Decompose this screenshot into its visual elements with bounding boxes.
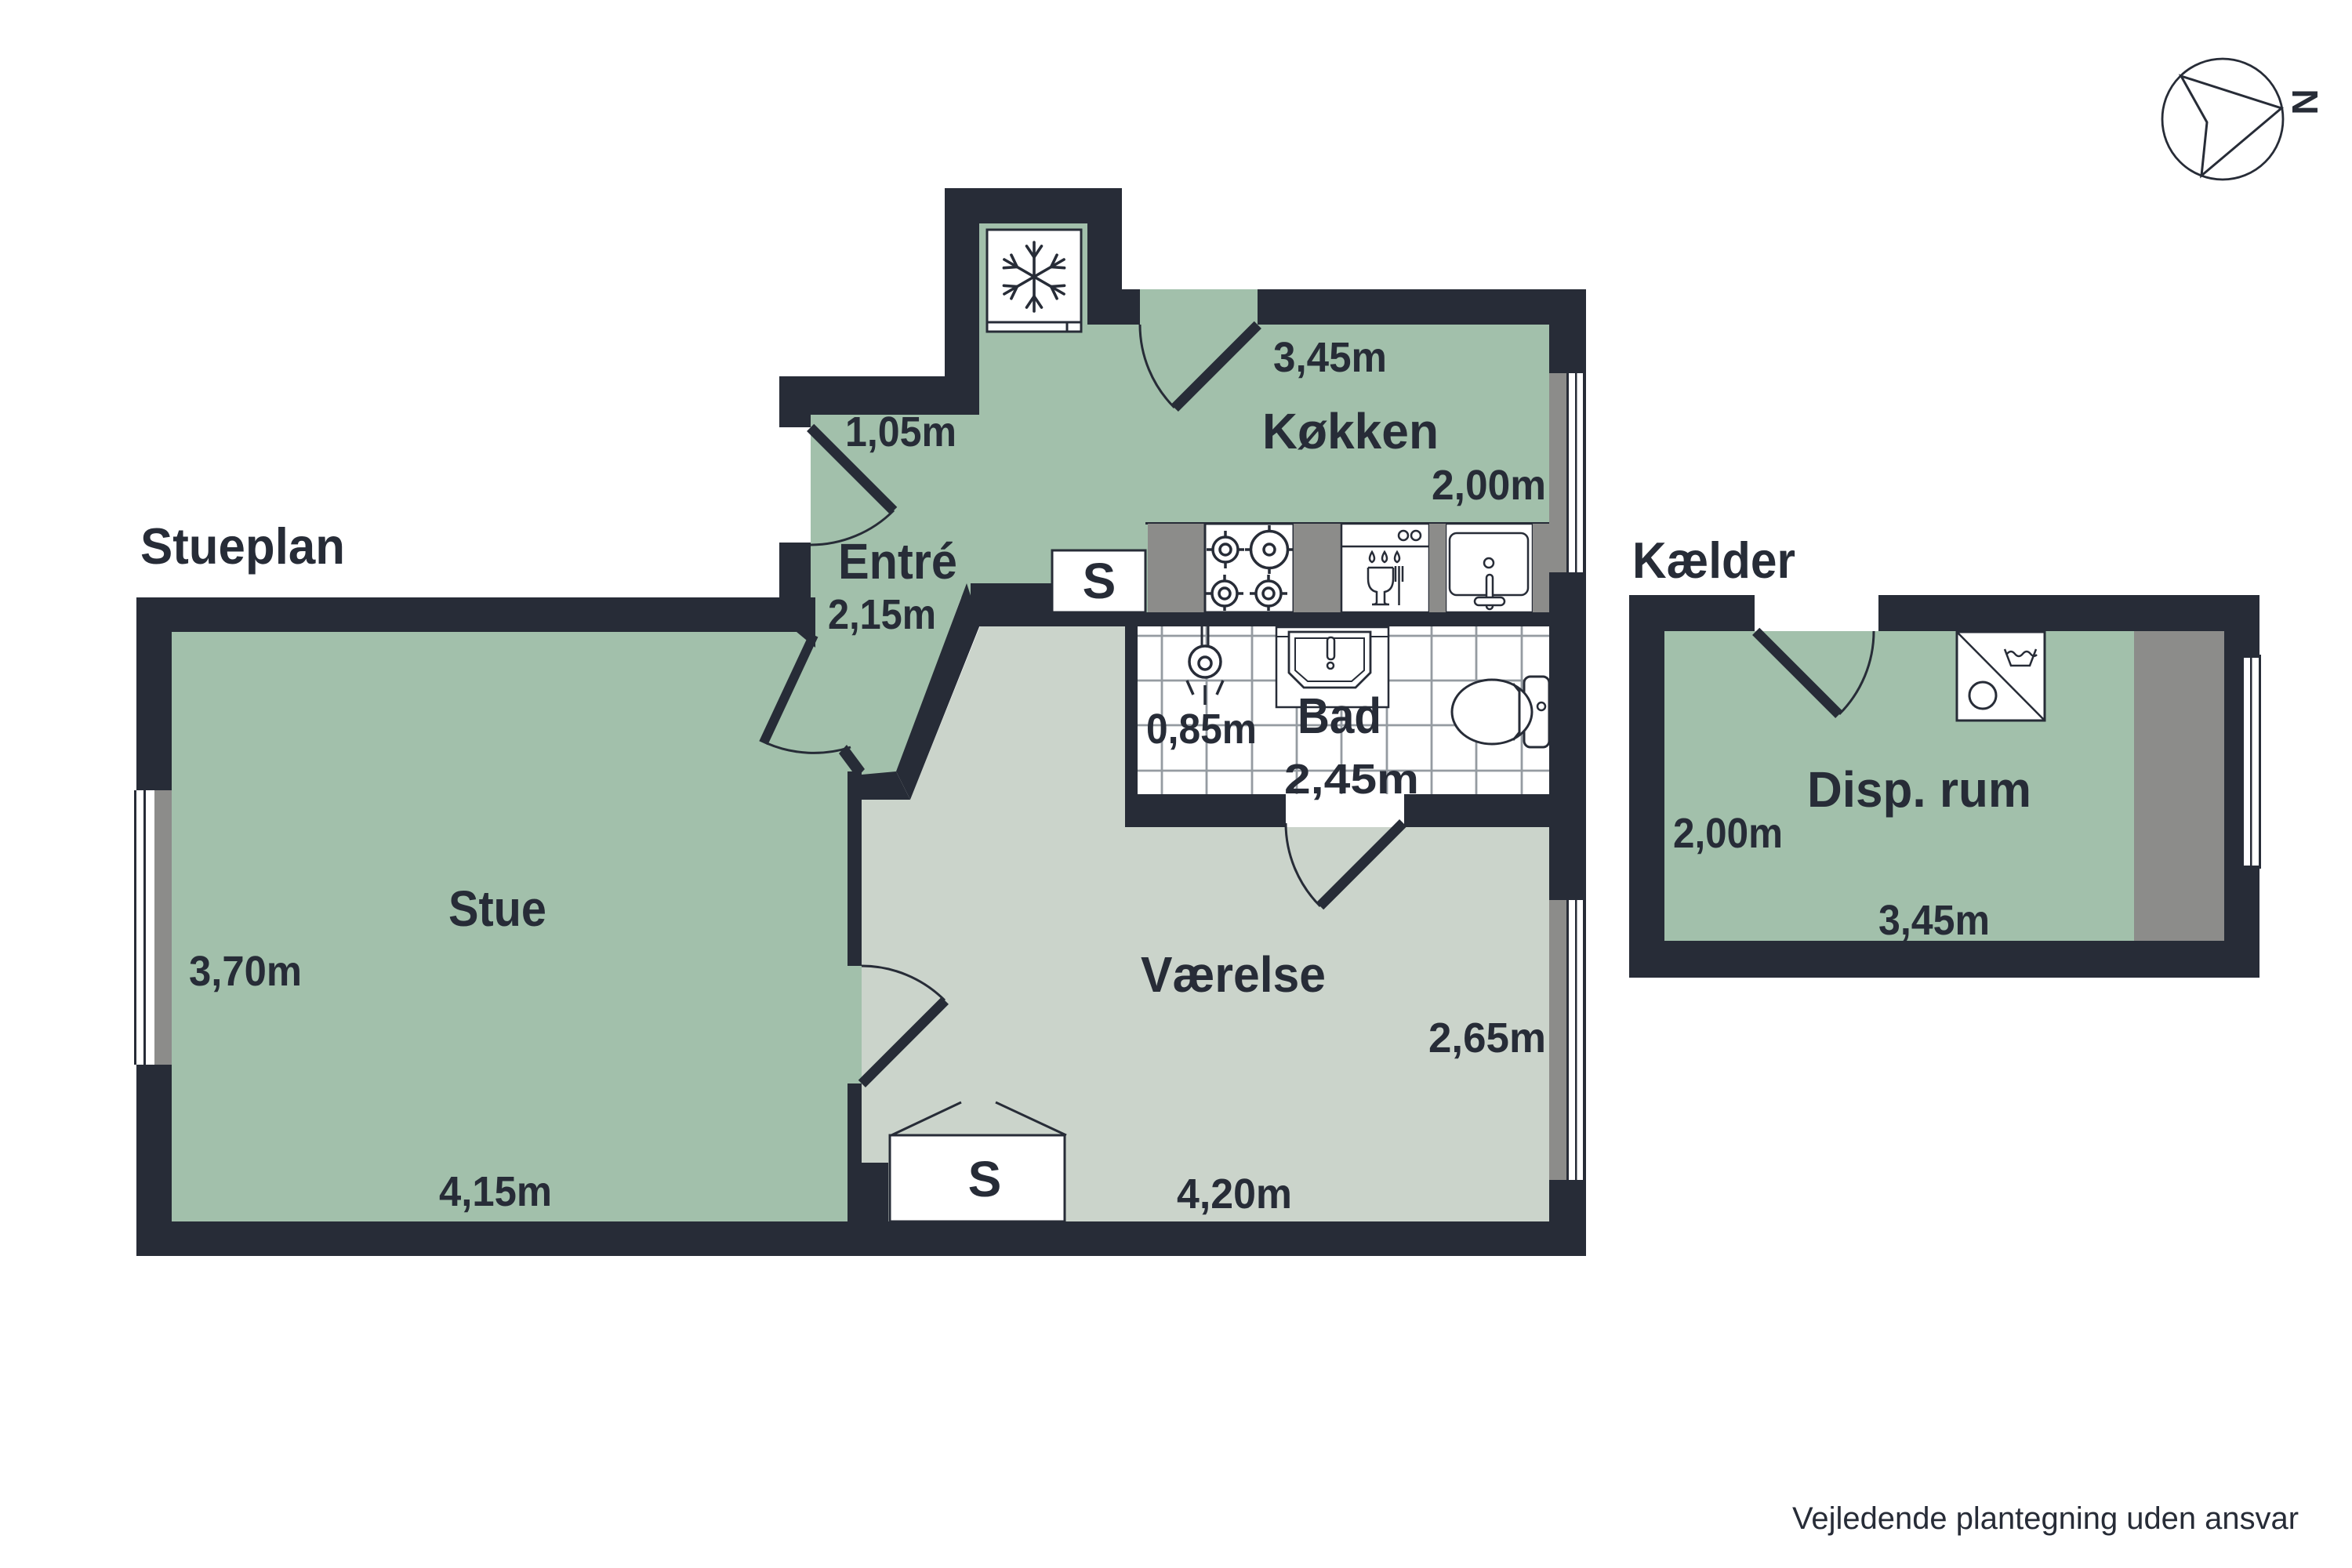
- svg-text:4,15m: 4,15m: [439, 1168, 552, 1215]
- svg-text:0,85m: 0,85m: [1146, 706, 1257, 753]
- svg-text:2,00m: 2,00m: [1432, 462, 1546, 509]
- svg-text:Kælder: Kælder: [1632, 532, 1795, 589]
- svg-text:3,70m: 3,70m: [189, 948, 302, 995]
- svg-text:2,45m: 2,45m: [1284, 756, 1419, 803]
- svg-text:1,05m: 1,05m: [845, 408, 956, 456]
- svg-text:4,20m: 4,20m: [1177, 1171, 1292, 1218]
- svg-text:N: N: [2285, 89, 2325, 114]
- svg-text:2,65m: 2,65m: [1428, 1014, 1546, 1062]
- svg-text:Stue: Stue: [448, 880, 546, 937]
- svg-text:Stueplan: Stueplan: [140, 517, 345, 575]
- svg-text:S: S: [968, 1151, 1002, 1207]
- svg-text:2,15m: 2,15m: [828, 591, 936, 638]
- svg-text:Køkken: Køkken: [1262, 403, 1439, 459]
- svg-text:Disp. rum: Disp. rum: [1807, 761, 2031, 818]
- svg-text:3,45m: 3,45m: [1273, 334, 1387, 381]
- svg-text:3,45m: 3,45m: [1878, 897, 1990, 944]
- svg-text:Vejledende plantegning uden an: Vejledende plantegning uden ansvar: [1792, 1501, 2299, 1536]
- svg-text:S: S: [1083, 553, 1116, 609]
- svg-text:Bad: Bad: [1298, 688, 1381, 744]
- svg-text:Entré: Entré: [838, 533, 957, 590]
- svg-text:Værelse: Værelse: [1141, 946, 1326, 1003]
- svg-text:2,00m: 2,00m: [1673, 810, 1783, 857]
